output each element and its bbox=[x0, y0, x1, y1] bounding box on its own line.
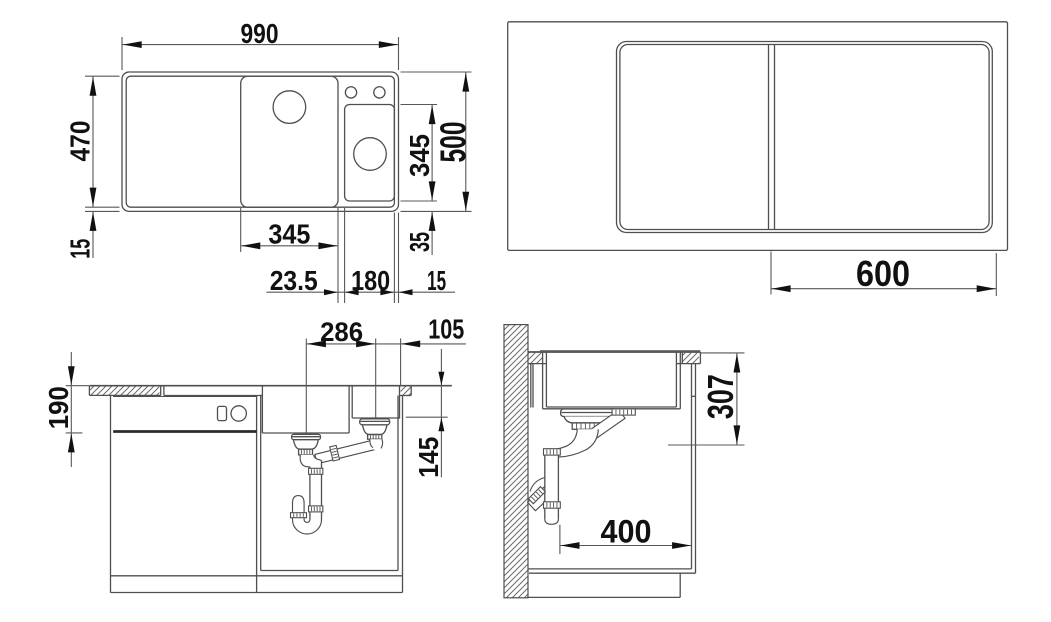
svg-text:345: 345 bbox=[404, 134, 435, 177]
svg-text:470: 470 bbox=[65, 121, 96, 162]
svg-text:990: 990 bbox=[241, 18, 279, 49]
svg-text:145: 145 bbox=[413, 437, 444, 478]
svg-text:400: 400 bbox=[601, 513, 652, 549]
svg-text:35: 35 bbox=[404, 232, 435, 252]
svg-text:23.5: 23.5 bbox=[270, 265, 318, 296]
svg-text:286: 286 bbox=[320, 317, 363, 347]
svg-text:190: 190 bbox=[43, 386, 74, 429]
svg-text:345: 345 bbox=[268, 218, 310, 249]
svg-text:500: 500 bbox=[432, 122, 473, 163]
svg-text:15: 15 bbox=[427, 265, 446, 296]
svg-text:180: 180 bbox=[351, 265, 390, 296]
svg-text:307: 307 bbox=[700, 374, 741, 419]
svg-text:15: 15 bbox=[65, 239, 96, 259]
svg-text:105: 105 bbox=[428, 314, 464, 345]
svg-text:600: 600 bbox=[856, 253, 910, 294]
